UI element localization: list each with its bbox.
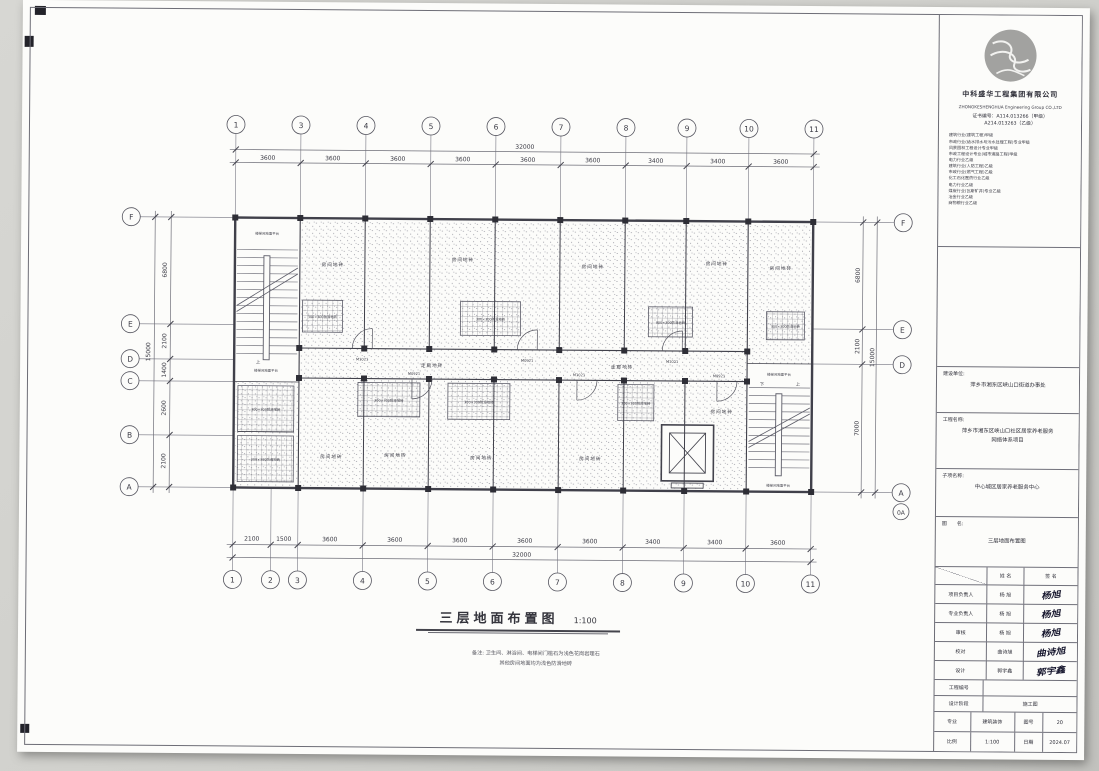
svg-text:10: 10 bbox=[741, 579, 751, 588]
svg-text:6: 6 bbox=[494, 123, 499, 132]
note-line: 其他房间地面均为浅色防滑地砖 bbox=[386, 659, 686, 671]
svg-text:7000: 7000 bbox=[854, 421, 861, 437]
signature-cell: 杨旭 bbox=[1023, 623, 1077, 642]
role-label: 专业负责人 bbox=[935, 603, 986, 622]
svg-text:2100: 2100 bbox=[161, 333, 168, 349]
major-label: 专业 bbox=[934, 712, 970, 731]
svg-text:7: 7 bbox=[555, 578, 560, 587]
project-value-line2: 网络体系项目 bbox=[943, 436, 1073, 445]
svg-text:2100: 2100 bbox=[854, 339, 861, 355]
svg-text:M0921: M0921 bbox=[713, 374, 725, 378]
svg-text:1: 1 bbox=[230, 575, 235, 584]
major-fig-row: 专业 建筑装饰 图号 20 bbox=[934, 712, 1076, 733]
signature-cell: 杨旭 bbox=[1023, 604, 1077, 623]
role-label: 项目负责人 bbox=[935, 584, 986, 603]
svg-text:300×300防滑地砖: 300×300防滑地砖 bbox=[251, 407, 281, 412]
scale-value: 1:100 bbox=[970, 732, 1014, 751]
svg-text:9: 9 bbox=[681, 579, 686, 588]
svg-text:300×300防滑地砖: 300×300防滑地砖 bbox=[621, 401, 651, 406]
blank-cell bbox=[937, 247, 1080, 368]
scale-date-row: 比例 1:100 日期 2024.07 bbox=[934, 732, 1076, 752]
design-stage-row: 设计阶段 施工图 bbox=[934, 696, 1076, 713]
svg-text:4: 4 bbox=[364, 122, 369, 131]
role-label: 校对 bbox=[935, 641, 986, 660]
date-value: 2024.07 bbox=[1042, 733, 1076, 752]
design-stage-value: 施工图 bbox=[983, 696, 1077, 712]
svg-text:下: 下 bbox=[760, 382, 765, 388]
svg-text:3600: 3600 bbox=[585, 157, 601, 164]
signature-cell: 曲诗旭 bbox=[1023, 642, 1077, 661]
svg-text:M1021: M1021 bbox=[356, 357, 368, 361]
svg-text:0A: 0A bbox=[897, 510, 906, 517]
name-cell: 郭宇鑫 bbox=[986, 660, 1023, 679]
signature-table-corner bbox=[935, 567, 986, 584]
handwritten-signature: 曲诗旭 bbox=[1035, 644, 1066, 659]
client-label: 建设单位: bbox=[943, 370, 1073, 378]
drawing-title: 三层地面布置图 bbox=[439, 607, 558, 627]
drawing-notes: 备注: 卫生间、淋浴间、电梯间门槛石为浅色花岗岩理石 其他房间地面均为浅色防滑地… bbox=[386, 649, 686, 671]
floor-stipple bbox=[235, 220, 811, 490]
col-header-sign: 签 名 bbox=[1023, 568, 1077, 585]
qualification-item: 商物粮行业乙级 bbox=[948, 200, 1071, 207]
svg-text:300×300防滑地砖: 300×300防滑地砖 bbox=[308, 314, 338, 319]
subitem-value: 中心城区居家养老服务中心 bbox=[942, 483, 1072, 492]
drawing-frame: 3600 3600 3600 3600 3600 3600 3400 3400 … bbox=[24, 7, 1083, 753]
cert-number-line2: A214.013263（乙级） bbox=[939, 120, 1081, 128]
svg-text:3600: 3600 bbox=[582, 538, 598, 545]
signature-cell: 郭宇鑫 bbox=[1023, 661, 1077, 680]
svg-text:D: D bbox=[127, 355, 133, 364]
svg-text:6: 6 bbox=[490, 578, 495, 587]
dimension-labels-right: 6800 2100 7000 15000 bbox=[854, 268, 877, 437]
company-section: 中科盛华工程集团有限公司 ZHONGKESHENGHUA Engineering… bbox=[938, 15, 1082, 248]
handwritten-signature: 杨旭 bbox=[1040, 607, 1061, 621]
svg-text:15000: 15000 bbox=[869, 348, 876, 367]
design-stage-label: 设计阶段 bbox=[934, 696, 982, 711]
signature-table: 姓 名 签 名 项目负责人 杨 旭 杨旭 专业负责人 杨 旭 杨旭 审核 杨 旭… bbox=[935, 567, 1078, 681]
svg-text:3600: 3600 bbox=[260, 155, 276, 162]
svg-text:A: A bbox=[899, 489, 905, 498]
drawing-name-label: 图 名: bbox=[942, 520, 1072, 528]
svg-text:10: 10 bbox=[744, 124, 754, 133]
name-cell: 曲诗旭 bbox=[986, 641, 1023, 660]
fig-number-label: 图号 bbox=[1014, 713, 1043, 732]
svg-text:楼梯间地面平台: 楼梯间地面平台 bbox=[255, 231, 279, 236]
svg-text:300×300防滑地砖: 300×300防滑地砖 bbox=[771, 324, 801, 329]
svg-text:2100: 2100 bbox=[244, 536, 260, 543]
svg-text:6800: 6800 bbox=[855, 268, 862, 284]
svg-text:C: C bbox=[127, 377, 132, 386]
svg-text:300×300防滑地砖: 300×300防滑地砖 bbox=[251, 457, 281, 462]
svg-text:上: 上 bbox=[796, 381, 801, 388]
svg-text:11: 11 bbox=[806, 580, 816, 589]
svg-text:3: 3 bbox=[299, 121, 304, 130]
title-block-panel: 中科盛华工程集团有限公司 ZHONGKESHENGHUA Engineering… bbox=[933, 15, 1082, 752]
project-label: 工程名称: bbox=[943, 416, 1073, 424]
drawing-scale: 1:100 bbox=[574, 616, 597, 625]
drawing-name-value: 三层地面布置图 bbox=[942, 537, 1072, 546]
svg-text:3600: 3600 bbox=[387, 537, 403, 544]
svg-text:E: E bbox=[900, 326, 905, 335]
subitem-label: 子项名称: bbox=[942, 472, 1072, 480]
name-cell: 杨 旭 bbox=[986, 603, 1023, 622]
svg-text:3400: 3400 bbox=[648, 158, 664, 165]
svg-text:3600: 3600 bbox=[390, 156, 406, 163]
svg-text:D: D bbox=[899, 361, 905, 370]
svg-text:楼梯间地面平台: 楼梯间地面平台 bbox=[766, 483, 790, 488]
svg-text:9: 9 bbox=[685, 124, 690, 133]
svg-text:3600: 3600 bbox=[520, 157, 536, 164]
project-value-line1: 萍乡市湘东区峡山口社区居家养老服务 bbox=[943, 427, 1073, 436]
svg-text:300×300防滑地砖: 300×300防滑地砖 bbox=[476, 316, 506, 321]
svg-text:3400: 3400 bbox=[710, 158, 726, 165]
client-value: 萍乡市湘东区峡山口街道办事处 bbox=[943, 381, 1073, 390]
svg-text:8: 8 bbox=[624, 124, 629, 133]
svg-text:M1021: M1021 bbox=[573, 373, 585, 377]
svg-text:M0921: M0921 bbox=[521, 359, 533, 363]
svg-text:F: F bbox=[129, 213, 133, 222]
svg-text:3600: 3600 bbox=[322, 536, 338, 543]
svg-text:15000: 15000 bbox=[145, 342, 152, 361]
drawing-name-section: 图 名: 三层地面布置图 bbox=[936, 517, 1078, 568]
svg-text:3600: 3600 bbox=[452, 537, 468, 544]
svg-text:M1021: M1021 bbox=[666, 360, 678, 364]
handwritten-signature: 杨旭 bbox=[1040, 626, 1061, 640]
svg-text:5: 5 bbox=[425, 577, 430, 586]
svg-text:5: 5 bbox=[429, 122, 434, 131]
major-value: 建筑装饰 bbox=[970, 712, 1014, 731]
svg-text:3: 3 bbox=[295, 576, 300, 585]
svg-text:6800: 6800 bbox=[162, 262, 169, 278]
svg-text:300×300防滑地砖: 300×300防滑地砖 bbox=[464, 399, 494, 404]
svg-text:3600: 3600 bbox=[517, 538, 533, 545]
floor-plan: 3600 3600 3600 3600 3600 3600 3400 3400 … bbox=[60, 58, 970, 650]
qualification-list: 建筑行业(建筑工程)甲级 市政行业(给水排水与污水处理工程)专业甲级 风景园林工… bbox=[948, 132, 1072, 207]
role-label: 审核 bbox=[935, 622, 986, 641]
svg-text:楼梯间地面平台: 楼梯间地面平台 bbox=[254, 368, 278, 373]
subitem-section: 子项名称: 中心城区居家养老服务中心 bbox=[936, 469, 1078, 518]
handwritten-signature: 杨旭 bbox=[1040, 588, 1061, 602]
project-section: 工程名称: 萍乡市湘东区峡山口社区居家养老服务 网络体系项目 bbox=[936, 413, 1078, 470]
dimension-labels-left: 6800 2100 1400 2600 2100 15000 bbox=[144, 262, 169, 469]
name-cell: 杨 旭 bbox=[986, 584, 1023, 603]
svg-text:3400: 3400 bbox=[707, 539, 723, 546]
signature-cell: 杨旭 bbox=[1023, 585, 1077, 604]
svg-text:8: 8 bbox=[620, 579, 625, 588]
svg-text:3400: 3400 bbox=[645, 539, 661, 546]
drawing-sheet: 3600 3600 3600 3600 3600 3600 3400 3400 … bbox=[17, 0, 1090, 760]
svg-text:3600: 3600 bbox=[770, 540, 786, 547]
svg-text:B: B bbox=[127, 431, 132, 440]
project-number-row: 工程编号 bbox=[935, 680, 1077, 697]
svg-text:1: 1 bbox=[234, 120, 239, 129]
fig-number-value: 20 bbox=[1042, 713, 1076, 732]
elevator bbox=[661, 425, 713, 488]
role-label: 设计 bbox=[935, 660, 986, 679]
svg-text:3600: 3600 bbox=[773, 159, 789, 166]
dimension-labels-top: 3600 3600 3600 3600 3600 3600 3400 3400 … bbox=[260, 142, 789, 166]
svg-text:2100: 2100 bbox=[160, 453, 167, 469]
svg-text:3600: 3600 bbox=[455, 156, 471, 163]
svg-text:3600: 3600 bbox=[325, 155, 341, 162]
company-name-en: ZHONGKESHENGHUA Engineering Group CO.,LT… bbox=[939, 104, 1081, 110]
svg-text:2600: 2600 bbox=[161, 400, 168, 416]
col-header-name: 姓 名 bbox=[987, 567, 1024, 584]
svg-text:1500: 1500 bbox=[276, 536, 292, 543]
project-number-label: 工程编号 bbox=[935, 680, 983, 695]
name-cell: 杨 旭 bbox=[986, 622, 1023, 641]
svg-text:4: 4 bbox=[360, 576, 365, 585]
company-name-cn: 中科盛华工程集团有限公司 bbox=[939, 89, 1081, 100]
drawing-title-block: 三层地面布置图 1:100 bbox=[398, 607, 638, 635]
svg-text:楼梯间地面平台: 楼梯间地面平台 bbox=[767, 372, 791, 377]
date-label: 日期 bbox=[1014, 733, 1043, 752]
client-section: 建设单位: 萍乡市湘东区峡山口街道办事处 bbox=[937, 367, 1079, 414]
svg-text:300×300防滑地砖: 300×300防滑地砖 bbox=[656, 320, 686, 325]
company-logo-icon bbox=[984, 29, 1036, 81]
svg-text:E: E bbox=[128, 320, 133, 329]
svg-text:300×300防滑地砖: 300×300防滑地砖 bbox=[374, 398, 404, 403]
handwritten-signature: 郭宇鑫 bbox=[1035, 663, 1066, 678]
scale-label: 比例 bbox=[934, 732, 970, 751]
svg-text:A: A bbox=[127, 483, 133, 492]
svg-text:F: F bbox=[901, 219, 905, 228]
project-number-value bbox=[983, 680, 1077, 696]
svg-text:32000: 32000 bbox=[512, 552, 531, 559]
svg-text:2: 2 bbox=[268, 576, 273, 585]
svg-text:上: 上 bbox=[256, 359, 261, 366]
svg-text:1400: 1400 bbox=[161, 362, 168, 378]
svg-text:11: 11 bbox=[809, 125, 819, 134]
svg-text:M0921: M0921 bbox=[408, 372, 420, 376]
svg-text:7: 7 bbox=[559, 123, 564, 132]
svg-text:32000: 32000 bbox=[515, 144, 534, 151]
